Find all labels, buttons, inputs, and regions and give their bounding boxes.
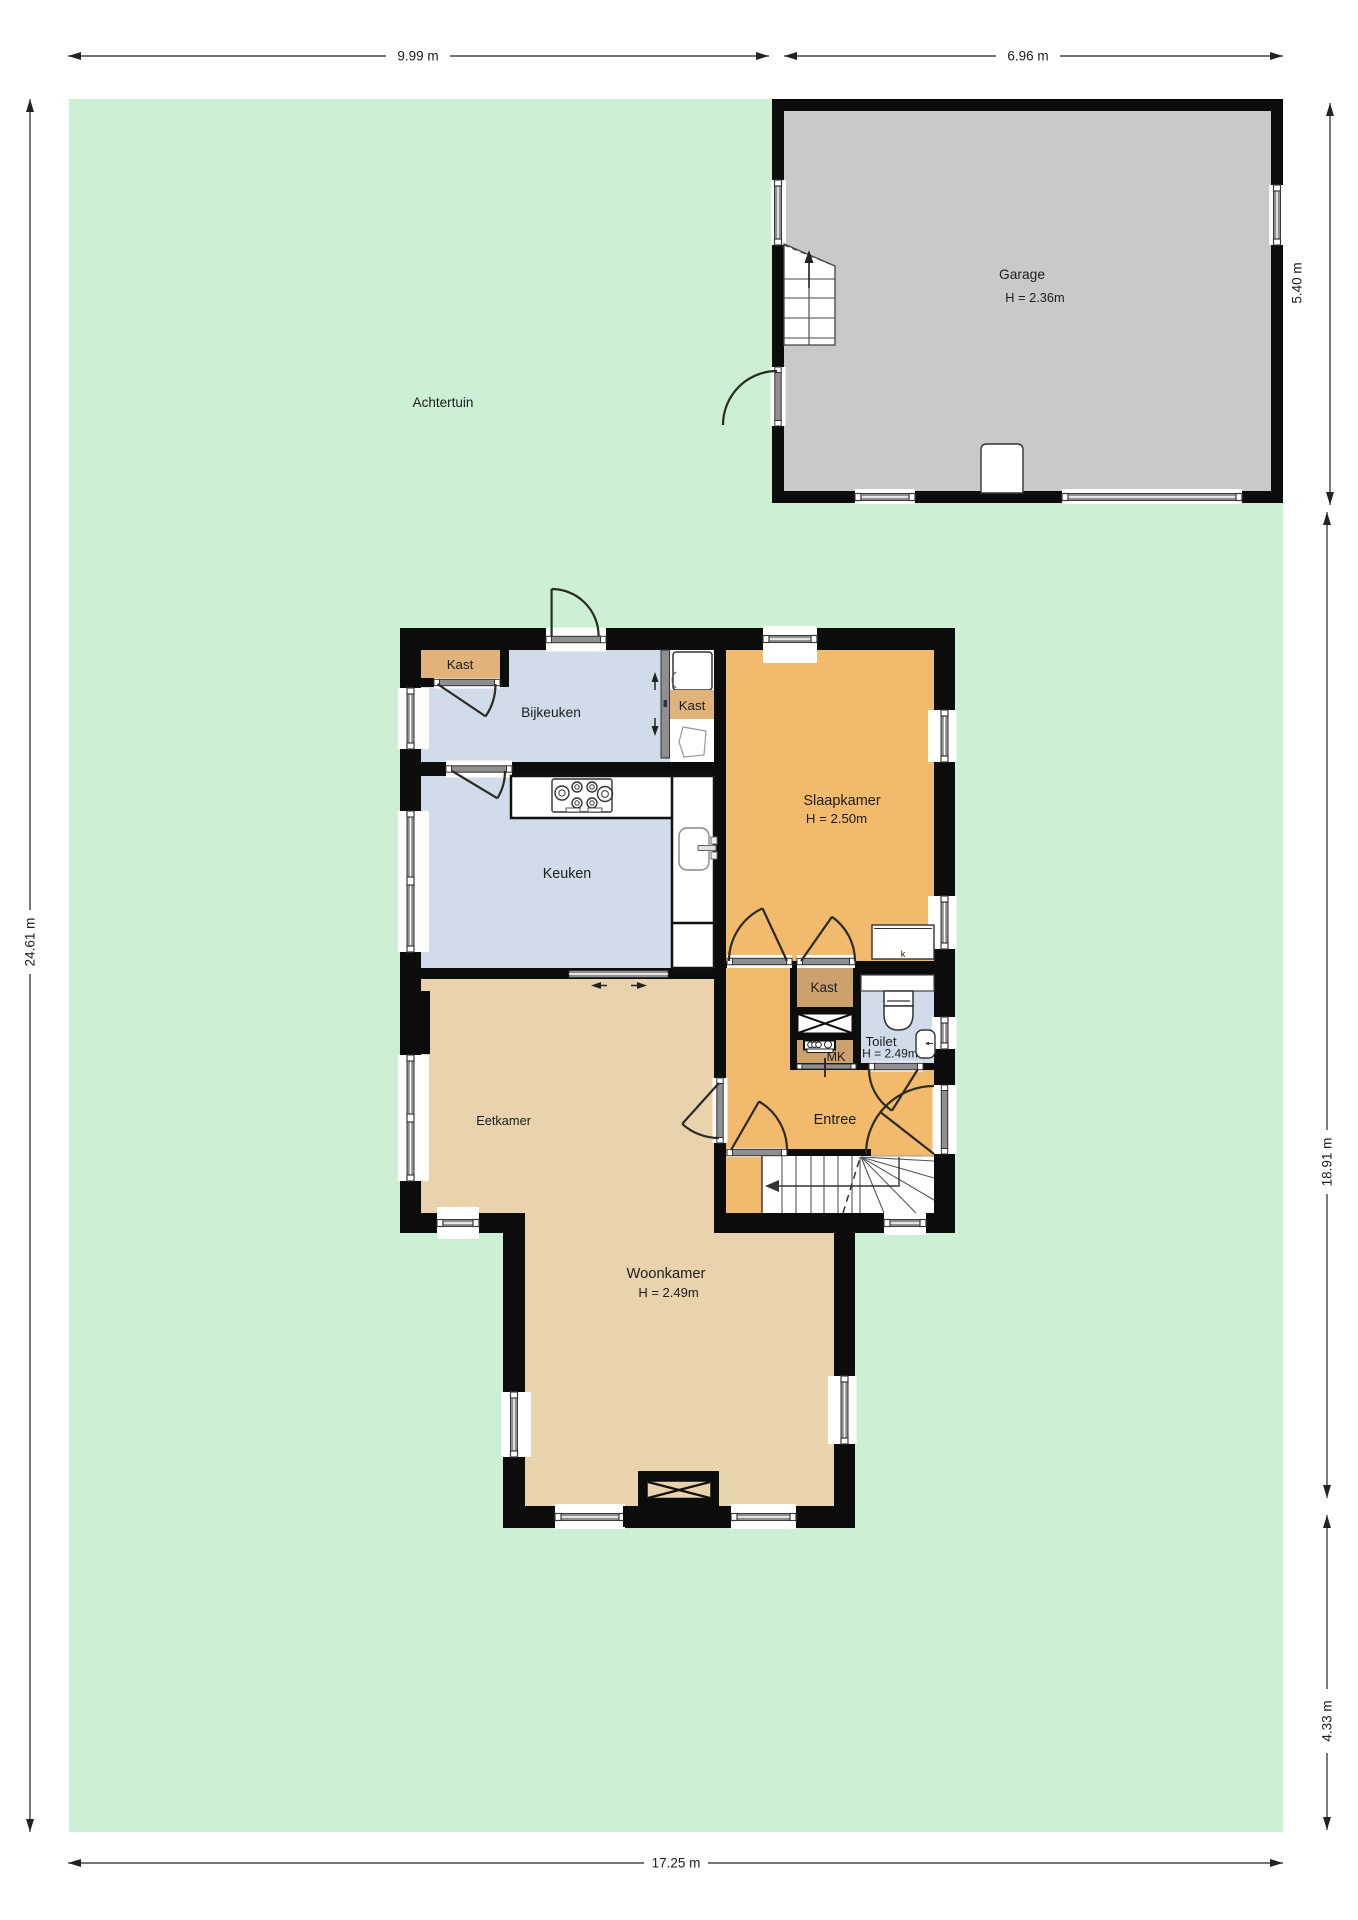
svg-text:MK: MK: [827, 1050, 846, 1064]
svg-text:Entree: Entree: [814, 1112, 857, 1128]
svg-text:24.61 m: 24.61 m: [23, 918, 38, 967]
svg-text:Eetkamer: Eetkamer: [476, 1113, 532, 1128]
svg-text:Kast: Kast: [447, 657, 474, 672]
svg-text:k: k: [901, 949, 906, 959]
svg-text:H = 2.49m: H = 2.49m: [638, 1285, 698, 1300]
svg-text:18.91 m: 18.91 m: [1320, 1138, 1335, 1187]
svg-text:17.25 m: 17.25 m: [652, 1856, 701, 1871]
svg-text:Slaapkamer: Slaapkamer: [803, 793, 881, 809]
svg-text:H = 2.50m: H = 2.50m: [806, 811, 867, 826]
svg-text:H = 2.36m: H = 2.36m: [1005, 290, 1064, 305]
svg-text:Achtertuin: Achtertuin: [413, 395, 474, 410]
svg-text:Bijkeuken: Bijkeuken: [521, 705, 581, 720]
svg-text:Kast: Kast: [679, 698, 706, 713]
svg-text:6.96 m: 6.96 m: [1007, 49, 1048, 64]
svg-text:5.40 m: 5.40 m: [1290, 262, 1305, 303]
svg-text:4.33 m: 4.33 m: [1320, 1700, 1335, 1741]
svg-text:Garage: Garage: [999, 267, 1045, 282]
svg-text:Kast: Kast: [810, 980, 837, 995]
svg-text:H = 2.49m: H = 2.49m: [862, 1047, 918, 1061]
svg-text:Keuken: Keuken: [543, 866, 592, 882]
svg-text:9.99 m: 9.99 m: [397, 49, 438, 64]
svg-text:Woonkamer: Woonkamer: [627, 1266, 706, 1282]
